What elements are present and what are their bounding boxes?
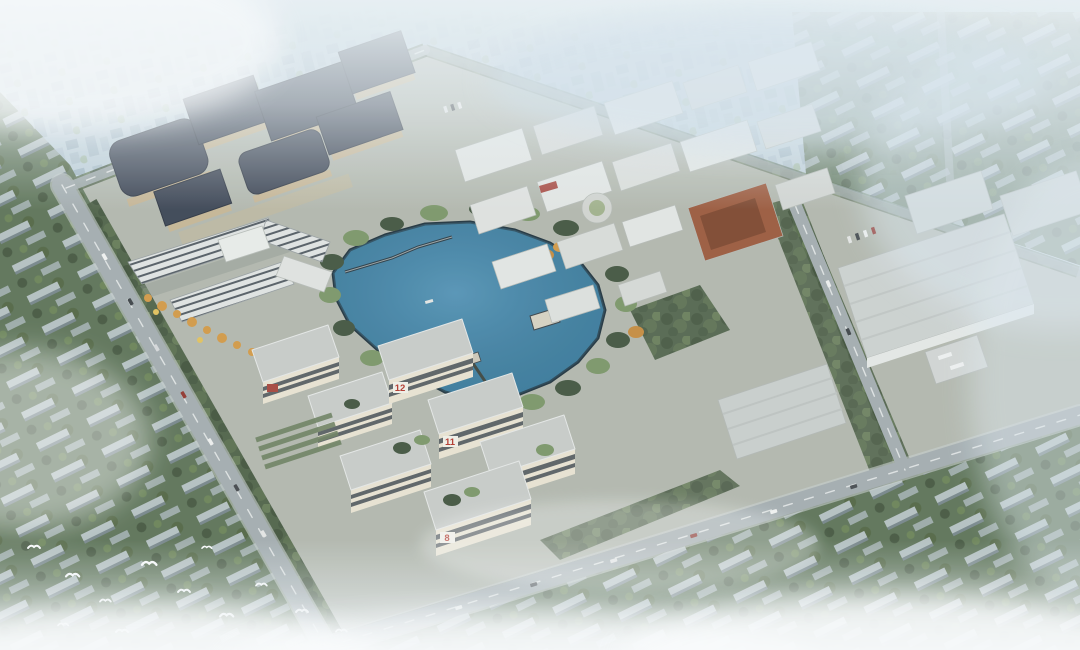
fog-layer (0, 0, 1080, 650)
aerial-park-rendering: 12 11 10 8 (0, 0, 1080, 650)
rendering-canvas: 12 11 10 8 (0, 0, 1080, 650)
